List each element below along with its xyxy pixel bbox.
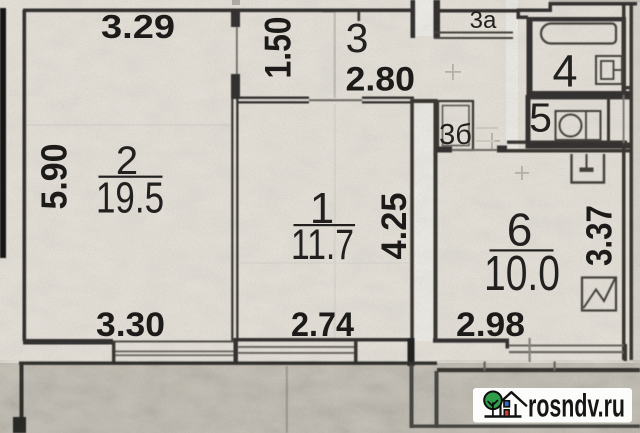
svg-text:rosndv.ru: rosndv.ru [528, 387, 625, 423]
